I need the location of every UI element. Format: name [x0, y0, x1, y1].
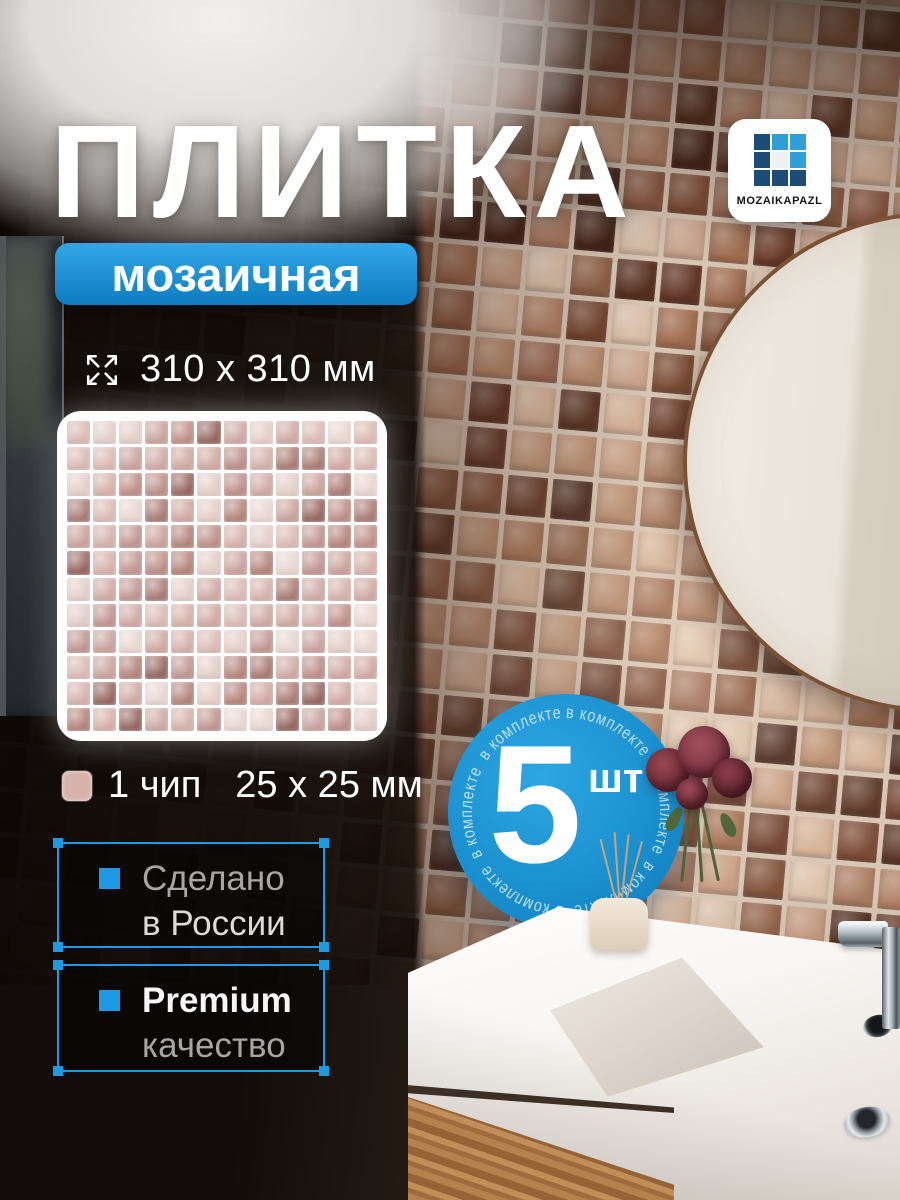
- brand-icon-square: [754, 152, 770, 168]
- mosaic-tile: [276, 656, 299, 679]
- selection-handle: [53, 960, 63, 970]
- mosaic-tile: [119, 421, 142, 444]
- brand-icon-square: [790, 152, 806, 168]
- category-badge-label: мозаичная: [111, 247, 360, 302]
- mosaic-tile: [67, 447, 90, 470]
- mosaic-tile: [171, 525, 194, 548]
- mosaic-tile: [354, 682, 377, 705]
- mosaic-tile: [224, 421, 247, 444]
- mosaic-tile: [354, 447, 377, 470]
- mosaic-tile: [145, 473, 168, 496]
- mosaic-tile: [67, 551, 90, 574]
- mosaic-tile: [328, 447, 351, 470]
- mosaic-tile: [354, 578, 377, 601]
- mosaic-tile: [197, 656, 220, 679]
- feature-bullet-icon: [99, 990, 120, 1011]
- mosaic-tile: [171, 630, 194, 653]
- mosaic-tile: [224, 656, 247, 679]
- mosaic-tile: [197, 473, 220, 496]
- mosaic-tile: [224, 447, 247, 470]
- mosaic-tile: [67, 421, 90, 444]
- mosaic-tile: [276, 708, 299, 731]
- mosaic-tile: [224, 578, 247, 601]
- mosaic-tile: [93, 656, 116, 679]
- mosaic-tile: [93, 447, 116, 470]
- mosaic-tile: [197, 682, 220, 705]
- brand-mosaic-icon: [754, 134, 806, 186]
- mosaic-tile: [328, 708, 351, 731]
- mosaic-tile: [67, 604, 90, 627]
- mosaic-tile: [197, 578, 220, 601]
- selection-handle: [319, 960, 329, 970]
- mosaic-tile: [119, 499, 142, 522]
- mosaic-tile: [224, 551, 247, 574]
- mosaic-tile: [250, 499, 273, 522]
- chip-swatch-icon: [62, 771, 92, 801]
- product-tile-card: [57, 411, 387, 741]
- mosaic-tile: [119, 473, 142, 496]
- chip-count-label: 1 чип: [108, 764, 201, 807]
- mosaic-tile: [250, 656, 273, 679]
- mosaic-tile: [145, 499, 168, 522]
- mosaic-tile: [93, 473, 116, 496]
- mosaic-tile: [145, 447, 168, 470]
- mosaic-tile: [171, 551, 194, 574]
- brand-icon-square: [754, 134, 770, 150]
- quantity-unit: шт: [588, 754, 644, 930]
- mosaic-tile: [224, 604, 247, 627]
- mosaic-tile: [197, 421, 220, 444]
- brand-icon-square: [772, 134, 788, 150]
- mosaic-tile: [171, 578, 194, 601]
- mosaic-tile: [276, 447, 299, 470]
- mosaic-tile: [93, 525, 116, 548]
- mosaic-tile: [302, 499, 325, 522]
- mosaic-tile: [276, 578, 299, 601]
- brand-name: MOZAIKAPAZL: [737, 195, 823, 207]
- mosaic-tile: [328, 656, 351, 679]
- mosaic-tile: [119, 525, 142, 548]
- mosaic-tile: [250, 525, 273, 548]
- mosaic-tile: [276, 682, 299, 705]
- mosaic-tile: [119, 708, 142, 731]
- brand-icon-square: [754, 170, 770, 186]
- mosaic-tile: [302, 578, 325, 601]
- mosaic-tile: [145, 578, 168, 601]
- mosaic-tile: [171, 447, 194, 470]
- mosaic-tile: [302, 656, 325, 679]
- feature-line-1: Premium: [142, 978, 292, 1023]
- mosaic-tile: [224, 499, 247, 522]
- mosaic-tile: [354, 604, 377, 627]
- mosaic-tile: [276, 525, 299, 548]
- mosaic-tile: [67, 682, 90, 705]
- mosaic-tile: [250, 421, 273, 444]
- mosaic-tile: [302, 525, 325, 548]
- mosaic-tile: [171, 682, 194, 705]
- mosaic-tile: [354, 630, 377, 653]
- sheet-size-label: 310 x 310 мм: [140, 348, 376, 391]
- mosaic-tile: [171, 473, 194, 496]
- mosaic-tile: [328, 630, 351, 653]
- mosaic-tile: [197, 708, 220, 731]
- mosaic-tile: [93, 604, 116, 627]
- mosaic-tile: [302, 473, 325, 496]
- mosaic-tile: [67, 708, 90, 731]
- mosaic-tile: [250, 551, 273, 574]
- mosaic-tile: [93, 421, 116, 444]
- mosaic-tile: [93, 708, 116, 731]
- mosaic-tile: [93, 630, 116, 653]
- expand-arrows-icon: [84, 352, 120, 388]
- mosaic-tile: [224, 682, 247, 705]
- mosaic-tile: [67, 473, 90, 496]
- mosaic-tile: [93, 578, 116, 601]
- mosaic-tile: [119, 578, 142, 601]
- mosaic-tile: [67, 525, 90, 548]
- brand-icon-square: [790, 134, 806, 150]
- mosaic-tile: [197, 604, 220, 627]
- mosaic-tile: [328, 682, 351, 705]
- chip-size-row: 1 чип 25 x 25 мм: [62, 764, 423, 807]
- mosaic-tile: [302, 551, 325, 574]
- marketing-overlay: ПЛИТКА мозаичная 310 x 310 мм 1 чип 25 x…: [0, 0, 900, 1200]
- mosaic-tile: [328, 421, 351, 444]
- quantity-center: 5 шт: [448, 694, 684, 930]
- mosaic-tile: [354, 656, 377, 679]
- mosaic-tile: [250, 473, 273, 496]
- sheet-size-row: 310 x 310 мм: [84, 348, 376, 391]
- mosaic-tile: [119, 604, 142, 627]
- mosaic-tile: [224, 630, 247, 653]
- mosaic-tile: [93, 499, 116, 522]
- selection-handle: [319, 942, 329, 952]
- mosaic-tile: [328, 499, 351, 522]
- feature-line-2: в России: [142, 901, 286, 946]
- mosaic-tile: [197, 551, 220, 574]
- mosaic-tile: [302, 630, 325, 653]
- mosaic-tile: [250, 630, 273, 653]
- mosaic-tile: [145, 630, 168, 653]
- mosaic-tile: [224, 473, 247, 496]
- feature-line-2: качество: [142, 1023, 292, 1068]
- mosaic-tile: [302, 421, 325, 444]
- category-badge: мозаичная: [55, 243, 417, 305]
- page-title: ПЛИТКА: [50, 106, 637, 238]
- mosaic-tile: [354, 708, 377, 731]
- selection-handle: [53, 838, 63, 848]
- mosaic-tile: [354, 525, 377, 548]
- mosaic-tile: [145, 421, 168, 444]
- mosaic-tile: [171, 421, 194, 444]
- selection-handle: [319, 838, 329, 848]
- quantity-badge: в комплекте в комплекте в комплекте в ко…: [448, 694, 684, 930]
- mosaic-tile: [67, 578, 90, 601]
- mosaic-tile: [354, 499, 377, 522]
- mosaic-tile: [171, 708, 194, 731]
- mosaic-tile: [171, 499, 194, 522]
- mosaic-tile: [197, 630, 220, 653]
- mosaic-tile: [328, 525, 351, 548]
- mosaic-tile: [250, 708, 273, 731]
- mosaic-tile: [93, 551, 116, 574]
- mosaic-tile: [328, 578, 351, 601]
- mosaic-tile: [67, 499, 90, 522]
- mosaic-tile: [328, 604, 351, 627]
- mosaic-tile: [250, 682, 273, 705]
- mosaic-tile: [276, 499, 299, 522]
- mosaic-tile: [67, 656, 90, 679]
- mosaic-tile: [250, 447, 273, 470]
- selection-handle: [53, 942, 63, 952]
- mosaic-tile: [119, 682, 142, 705]
- mosaic-tile: [250, 604, 273, 627]
- mosaic-tile: [328, 473, 351, 496]
- mosaic-tile: [197, 447, 220, 470]
- mosaic-tile: [302, 682, 325, 705]
- selection-handle: [53, 1066, 63, 1076]
- mosaic-tile: [119, 656, 142, 679]
- mosaic-tile: [197, 525, 220, 548]
- mosaic-tile: [145, 525, 168, 548]
- mosaic-tile: [197, 499, 220, 522]
- mosaic-tile: [276, 630, 299, 653]
- mosaic-tile: [145, 604, 168, 627]
- mosaic-tile: [354, 551, 377, 574]
- quantity-number: 5: [488, 686, 581, 930]
- mosaic-tile: [93, 682, 116, 705]
- mosaic-tile: [119, 447, 142, 470]
- mosaic-tile: [145, 551, 168, 574]
- mosaic-tile: [328, 551, 351, 574]
- mosaic-tile: [250, 578, 273, 601]
- mosaic-tile: [171, 604, 194, 627]
- mosaic-tile: [276, 421, 299, 444]
- selection-handle: [319, 1066, 329, 1076]
- mosaic-tile: [302, 604, 325, 627]
- mosaic-tile: [145, 708, 168, 731]
- mosaic-tile: [302, 447, 325, 470]
- feature-badge-premium-quality: Premium качество: [57, 964, 325, 1072]
- mosaic-tile: [171, 656, 194, 679]
- mosaic-tile: [354, 473, 377, 496]
- mosaic-tile: [354, 421, 377, 444]
- mosaic-tile: [276, 604, 299, 627]
- feature-bullet-icon: [99, 868, 120, 889]
- mosaic-tile: [302, 708, 325, 731]
- brand-icon-square: [772, 152, 788, 168]
- mosaic-tile: [276, 473, 299, 496]
- mosaic-tile: [224, 525, 247, 548]
- mosaic-tile: [119, 551, 142, 574]
- feature-line-1: Сделано: [142, 856, 286, 901]
- mosaic-tile: [224, 708, 247, 731]
- brand-icon-square: [772, 170, 788, 186]
- chip-size-label: 25 x 25 мм: [235, 764, 422, 807]
- mosaic-tile: [145, 656, 168, 679]
- mosaic-tile: [119, 630, 142, 653]
- brand-card: MOZAIKAPAZL: [728, 119, 831, 222]
- mosaic-tile: [145, 682, 168, 705]
- mosaic-tile: [276, 551, 299, 574]
- brand-icon-square: [790, 170, 806, 186]
- product-banner: ПЛИТКА мозаичная 310 x 310 мм 1 чип 25 x…: [0, 0, 900, 1200]
- product-tile-grid: [67, 421, 377, 731]
- feature-badge-made-in-russia: Сделано в России: [57, 842, 325, 948]
- mosaic-tile: [67, 630, 90, 653]
